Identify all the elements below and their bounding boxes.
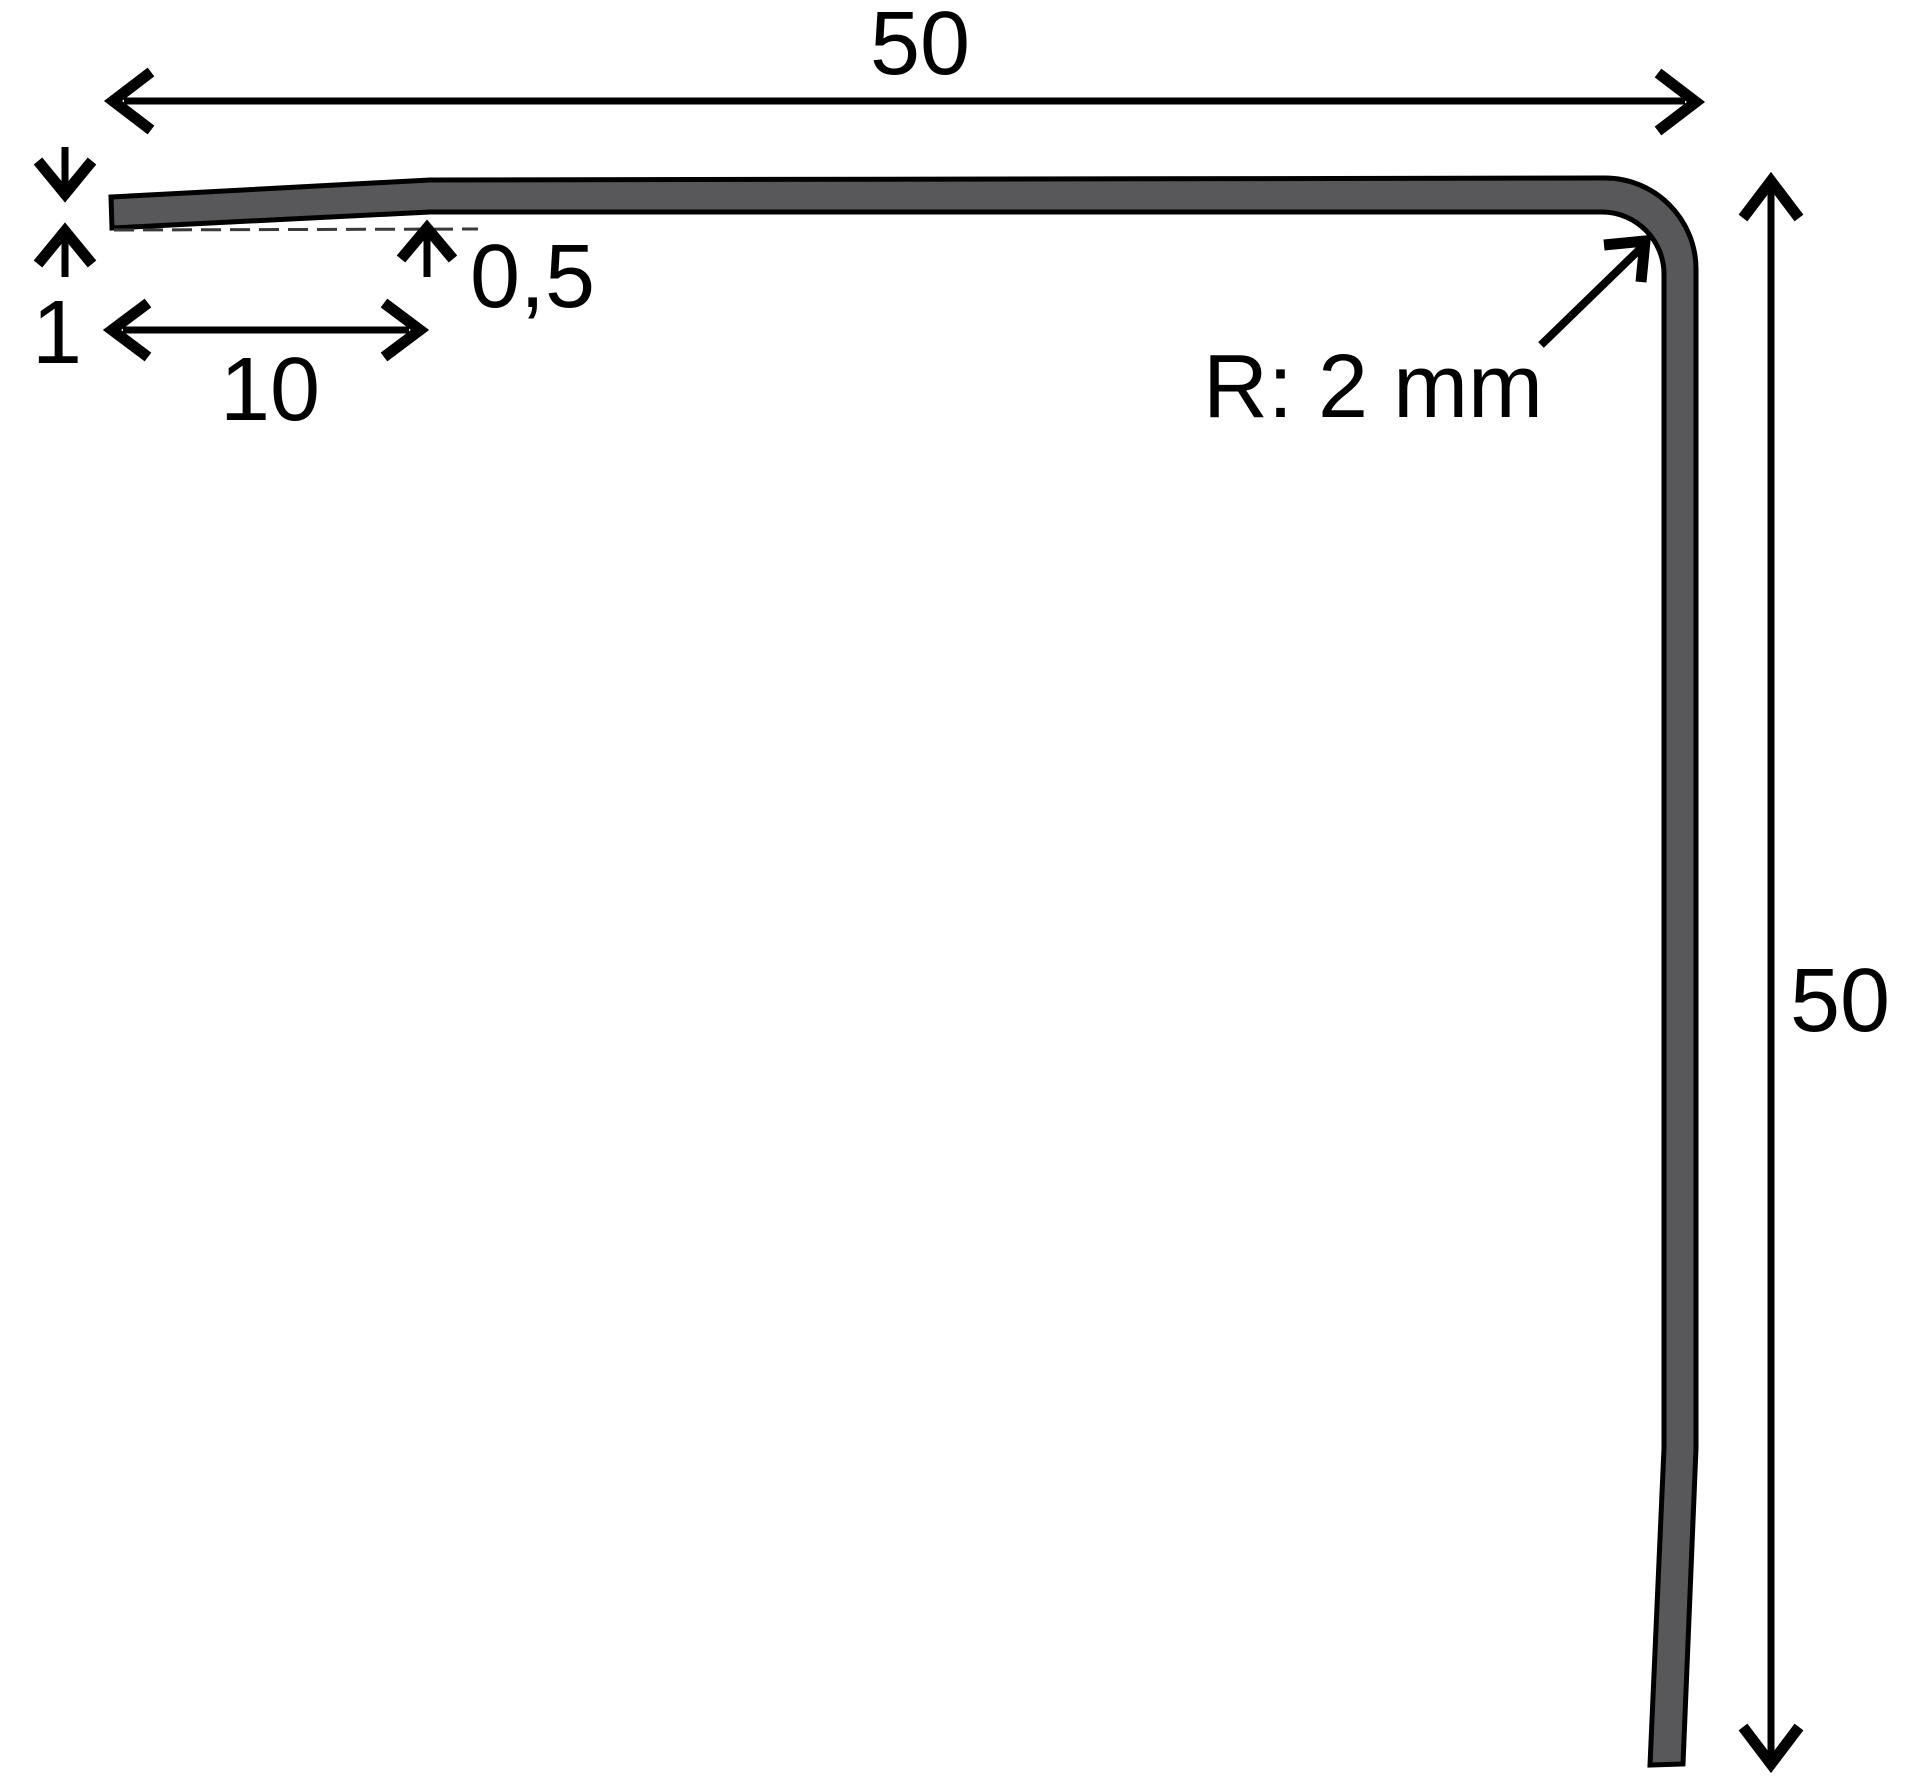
dimension-tip-thickness [38, 147, 92, 277]
profile-dimension-drawing: 50 50 1 0,5 10 [0, 0, 1920, 1776]
dimension-label-tip-thickness: 1 [32, 283, 82, 383]
dimension-label-width-top: 50 [870, 0, 970, 94]
dimension-bend-offset [401, 228, 453, 277]
dimension-label-corner-radius: R: 2 mm [1203, 337, 1543, 437]
radius-annotation [1541, 241, 1645, 345]
dimension-label-bend-length: 10 [220, 340, 320, 440]
dimension-label-height-right: 50 [1790, 951, 1890, 1051]
dimension-label-bend-offset: 0,5 [470, 227, 595, 327]
technical-drawing-page: 50 50 1 0,5 10 [0, 0, 1920, 1776]
radius-leader-line [1541, 246, 1643, 345]
